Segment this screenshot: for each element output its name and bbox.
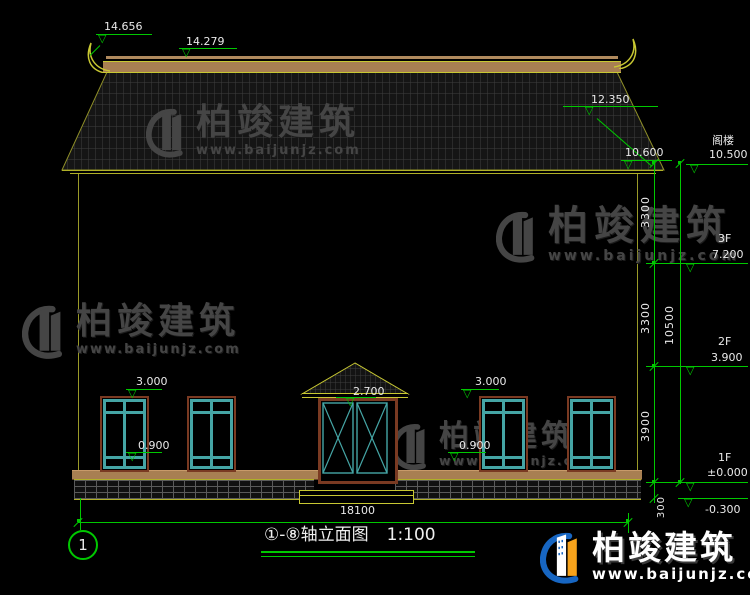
door-leaves [321, 401, 389, 475]
vdim-segment-1: 3300 [640, 196, 651, 228]
elevation-ridge-tip: 14.656 [104, 21, 143, 32]
elevation-window-left-sill: 0.900 [138, 440, 170, 451]
dim-node [652, 364, 655, 367]
watermark-url: www.baijunjz.com [548, 249, 739, 263]
level-triangle-icon: ▽ [182, 48, 190, 58]
vdim-total-line [680, 163, 681, 484]
dim-node [652, 480, 655, 483]
level-triangle-icon: ▽ [686, 482, 694, 492]
drawing-title: ①-⑧轴立面图 1:100 [264, 525, 436, 545]
watermark-top: 柏竣建筑 www.baijunjz.com [146, 104, 361, 158]
level-triangle-icon: ▽ [585, 106, 593, 116]
level-triangle-icon: ▽ [686, 366, 694, 376]
level-label-1f: 1F [718, 452, 731, 463]
roof-ridge-band [103, 61, 621, 73]
roof-curl-left-icon [84, 40, 110, 73]
level-triangle-icon: ▽ [624, 160, 632, 170]
level-line [646, 482, 748, 483]
watermark-url: www.baijunjz.com [76, 343, 241, 356]
drawing-title-axes: ①-⑧轴立面图 [264, 525, 369, 545]
elevation-window-right-sill: 0.900 [459, 440, 491, 451]
level-triangle-icon: ▽ [98, 34, 106, 44]
watermark-left: 柏竣建筑 www.baijunjz.com [22, 300, 241, 360]
elevation-window-left-head: 3.000 [136, 376, 168, 387]
level-label-3f: 3F [718, 233, 731, 244]
level-triangle-icon: ▽ [690, 164, 698, 174]
window [100, 396, 149, 472]
level-triangle-icon: ▽ [128, 452, 136, 462]
level-triangle-icon: ▽ [463, 389, 471, 399]
dim-node [77, 519, 80, 522]
entry-step [299, 490, 414, 504]
elevation-window-right-head: 3.000 [475, 376, 507, 387]
dim-node [678, 161, 681, 164]
plinth-bricks-left [74, 479, 314, 500]
entry-door [318, 398, 398, 484]
watermark-brand: 柏竣建筑 [592, 531, 750, 564]
level-value-3f: 7.200 [712, 249, 744, 260]
eave-line-outer [62, 170, 663, 171]
elevation-ridge-top: 14.279 [186, 36, 225, 47]
watermark-url: www.baijunjz.com [196, 144, 361, 157]
watermark-brand: 柏竣建筑 [196, 105, 361, 141]
vdim-segment-3: 3900 [640, 410, 651, 442]
vdim-segment-4: 300 [657, 496, 667, 518]
marker-line [336, 397, 376, 398]
vdim-chain-line [654, 163, 655, 503]
level-value-minus300: -0.300 [705, 504, 740, 515]
level-value-attic: 10.500 [709, 149, 748, 160]
dim-node [652, 161, 655, 164]
grid-bubble-1: 1 [68, 530, 98, 560]
level-line [646, 263, 748, 264]
dim-node [652, 261, 655, 264]
elevation-eave: 10.600 [625, 147, 664, 158]
window [567, 396, 616, 472]
vdim-total: 10500 [664, 305, 675, 345]
watermark-brand: 柏竣建筑 [76, 304, 241, 340]
dim-node [678, 480, 681, 483]
elevation-door-head: 2.700 [353, 386, 385, 397]
level-label-2f: 2F [718, 336, 731, 347]
baijun-logo-icon [496, 207, 542, 263]
dim-node [626, 519, 629, 522]
window [479, 396, 528, 472]
hdim-line [78, 522, 628, 523]
level-value-2f: 3.900 [711, 352, 743, 363]
window [187, 396, 236, 472]
elevation-roof-slope: 12.350 [591, 94, 630, 105]
baijun-logo-icon [146, 104, 190, 158]
title-underline-thin [261, 556, 475, 557]
baijun-logo-icon [540, 526, 586, 586]
hdim-total: 18100 [340, 505, 375, 516]
plinth-bricks-right [395, 479, 641, 500]
baijun-logo-icon [22, 300, 70, 360]
level-triangle-icon: ▽ [346, 397, 354, 407]
vdim-segment-2: 3300 [640, 302, 651, 334]
roof-curl-right-icon [614, 36, 640, 69]
marker-line [563, 106, 658, 107]
level-triangle-icon: ▽ [128, 389, 136, 399]
level-label-attic: 阁楼 [712, 135, 734, 146]
grid-bubble-label: 1 [78, 536, 88, 554]
level-line [646, 366, 748, 367]
level-triangle-icon: ▽ [684, 498, 692, 508]
level-value-1f: ±0.000 [707, 467, 748, 478]
watermark-url: www.baijunjz.com [592, 567, 750, 582]
level-triangle-icon: ▽ [450, 452, 458, 462]
watermark-bottom-right: 柏竣建筑 www.baijunjz.com [540, 526, 750, 586]
elevation-drawing-canvas: 柏竣建筑 www.baijunjz.com 柏竣建筑 www.baijunjz.… [0, 0, 750, 595]
hdim-ext-left [80, 498, 81, 530]
watermark-right: 柏竣建筑 www.baijunjz.com [496, 206, 739, 263]
title-underline-thick [261, 551, 475, 553]
drawing-title-scale: 1:100 [387, 525, 436, 545]
level-triangle-icon: ▽ [686, 263, 694, 273]
